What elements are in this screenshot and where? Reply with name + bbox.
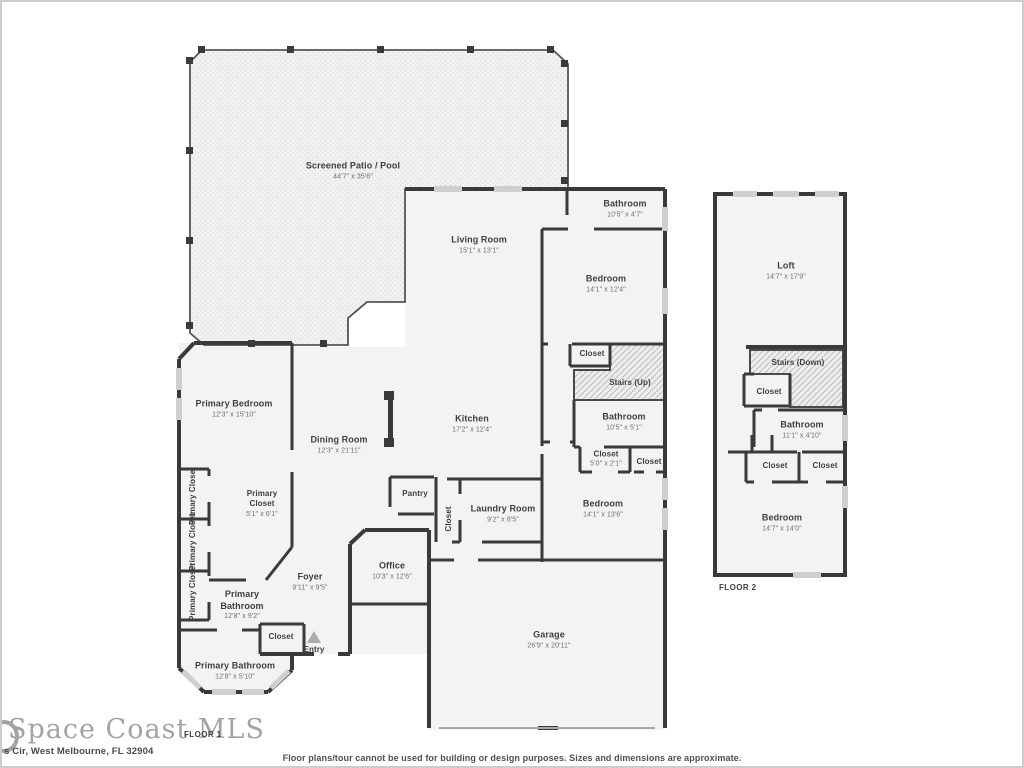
room-name: Primary Bathroom	[195, 661, 275, 673]
room-dims: 12'3" x 21'11"	[310, 446, 367, 455]
room-label-bedroom-f2: Bedroom 14'7" x 14'0"	[762, 513, 802, 534]
room-name: Bathroom	[602, 412, 645, 424]
room-label-closet-f2c: Closet	[812, 461, 837, 471]
room-label-primary-bedroom: Primary Bedroom 12'3" x 15'10"	[195, 399, 272, 420]
floorplan-canvas	[2, 2, 1024, 768]
room-label-stairs-up: Stairs (Up)	[609, 378, 651, 388]
room-label-laundry-room: Laundry Room 9'2" x 8'5"	[471, 504, 536, 525]
room-name: Primary Bathroom	[210, 589, 274, 612]
room-name: Stairs (Up)	[609, 378, 651, 388]
room-name: Primary Closet	[236, 489, 288, 510]
room-label-entry: Entry	[304, 645, 325, 655]
room-label-primary-bathroom-lower: Primary Bathroom 12'8" x 5'10"	[195, 661, 275, 682]
room-name: Bedroom	[586, 274, 626, 286]
room-name: Pantry	[402, 489, 428, 499]
room-label-bathroom-top: Bathroom 10'5" x 4'7"	[603, 199, 646, 220]
room-label-primary-closet-c: Primary Closet	[188, 563, 198, 621]
room-dims: 17'2" x 12'4"	[452, 425, 492, 434]
room-name: Entry	[304, 645, 325, 655]
room-dims: 9'2" x 8'5"	[471, 515, 536, 524]
room-dims: 14'1" x 13'6"	[583, 510, 623, 519]
room-label-closet-hall: Closet	[579, 349, 604, 359]
room-name: Bathroom	[780, 420, 823, 432]
room-name: Bathroom	[603, 199, 646, 211]
room-name: Garage	[527, 630, 570, 642]
room-dims: 10'5" x 4'7"	[603, 210, 646, 219]
room-dims: 15'1" x 13'1"	[451, 246, 507, 255]
room-name: Laundry Room	[471, 504, 536, 516]
room-label-closet-1: Closet 5'0" x 2'1"	[590, 449, 622, 468]
room-label-screened-patio-pool: Screened Patio / Pool 44'7" x 35'6"	[306, 161, 400, 182]
room-label-bathroom-f2: Bathroom 11'1" x 4'10"	[780, 420, 823, 441]
room-label-primary-bathroom-upper: Primary Bathroom 12'8" x 9'2"	[210, 589, 274, 621]
room-dims: 44'7" x 35'6"	[306, 172, 400, 181]
room-label-loft: Loft 14'7" x 17'9"	[766, 261, 806, 282]
floor2-tag: FLOOR 2	[719, 583, 756, 592]
room-dims: 5'0" x 2'1"	[590, 460, 622, 469]
room-name: Closet	[812, 461, 837, 471]
room-name: Closet	[636, 457, 661, 467]
room-dims: 5'1" x 6'1"	[236, 510, 288, 519]
room-dims: 11'1" x 4'10"	[780, 431, 823, 440]
room-name: Primary Closet	[188, 563, 198, 621]
room-label-pantry: Pantry	[402, 489, 428, 499]
room-dims: 10'5" x 5'1"	[602, 423, 645, 432]
room-label-bedroom-upper: Bedroom 14'1" x 12'4"	[586, 274, 626, 295]
floorplan-page: Screened Patio / Pool 44'7" x 35'6" Livi…	[0, 0, 1024, 768]
room-dims: 12'8" x 9'2"	[210, 612, 274, 621]
room-name: Loft	[766, 261, 806, 273]
room-name: Closet	[762, 461, 787, 471]
room-label-closet-2: Closet	[636, 457, 661, 467]
room-dims: 14'7" x 17'9"	[766, 272, 806, 281]
room-name: Stairs (Down)	[772, 358, 825, 368]
room-label-dining-room: Dining Room 12'3" x 21'11"	[310, 435, 367, 456]
disclaimer-text: Floor plans/tour cannot be used for buil…	[2, 753, 1022, 763]
room-name: Primary Bedroom	[195, 399, 272, 411]
room-name: Closet	[268, 632, 293, 642]
room-dims: 12'8" x 5'10"	[195, 672, 275, 681]
room-name: Closet	[579, 349, 604, 359]
room-label-kitchen: Kitchen 17'2" x 12'4"	[452, 414, 492, 435]
room-name: Bedroom	[762, 513, 802, 525]
room-label-stairs-down: Stairs (Down)	[772, 358, 825, 368]
room-label-garage: Garage 26'9" x 20'11"	[527, 630, 570, 651]
room-name: Closet	[444, 506, 454, 531]
room-dims: 9'11" x 9'5"	[292, 583, 327, 592]
room-label-living-room: Living Room 15'1" x 13'1"	[451, 235, 507, 256]
room-label-office: Office 10'3" x 12'6"	[372, 561, 412, 582]
floor1-tag: FLOOR 1	[184, 730, 221, 739]
room-name: Living Room	[451, 235, 507, 247]
room-dims: 12'3" x 15'10"	[195, 410, 272, 419]
room-name: Screened Patio / Pool	[306, 161, 400, 173]
room-dims: 26'9" x 20'11"	[527, 641, 570, 650]
watermark-text: Space Coast MLS	[8, 714, 265, 745]
room-label-closet-f2a: Closet	[756, 387, 781, 397]
room-label-closet-entry: Closet	[268, 632, 293, 642]
room-name: Bedroom	[583, 499, 623, 511]
room-dims: 10'3" x 12'6"	[372, 572, 412, 581]
room-label-bedroom-lower: Bedroom 14'1" x 13'6"	[583, 499, 623, 520]
room-label-primary-closet-main: Primary Closet 5'1" x 6'1"	[236, 489, 288, 519]
room-dims: 14'7" x 14'0"	[762, 524, 802, 533]
room-label-foyer: Foyer 9'11" x 9'5"	[292, 572, 327, 593]
room-dims: 14'1" x 12'4"	[586, 285, 626, 294]
room-name: Dining Room	[310, 435, 367, 447]
room-name: Closet	[756, 387, 781, 397]
room-name: Office	[372, 561, 412, 573]
room-label-bathroom-mid: Bathroom 10'5" x 5'1"	[602, 412, 645, 433]
room-name: Foyer	[292, 572, 327, 584]
room-name: Kitchen	[452, 414, 492, 426]
room-name: Closet	[590, 449, 622, 459]
room-label-closet-f2b: Closet	[762, 461, 787, 471]
room-label-closet-corridor: Closet	[444, 506, 454, 531]
